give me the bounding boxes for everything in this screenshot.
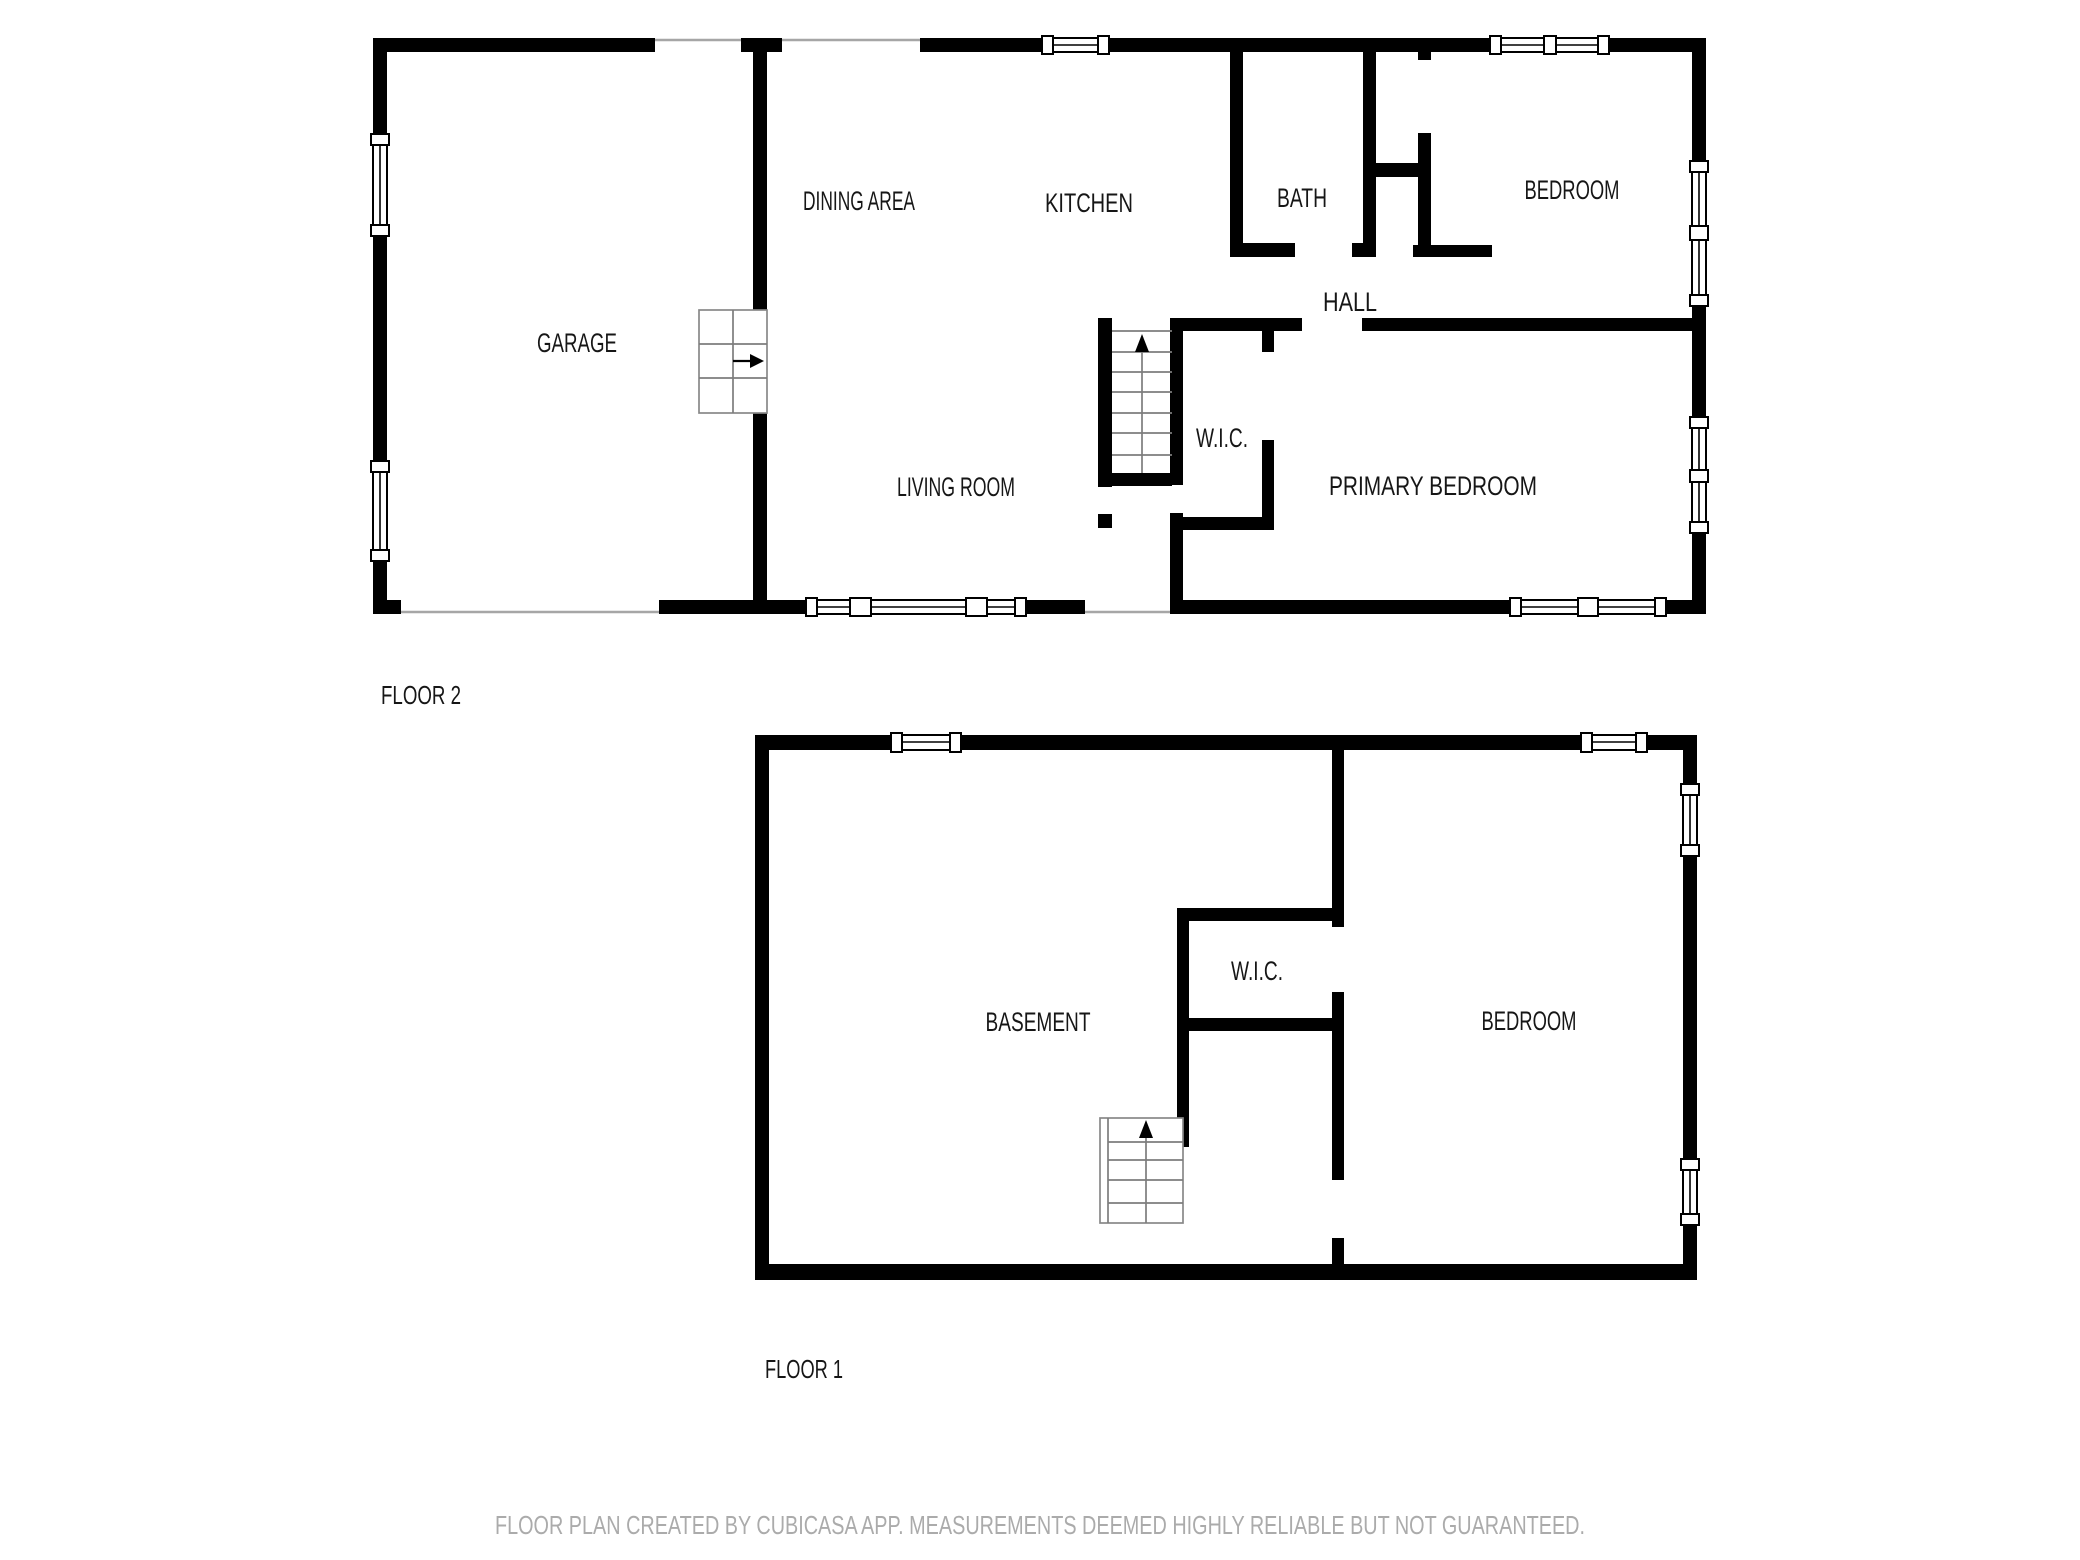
window — [1690, 417, 1708, 533]
room-label-basement: BASEMENT — [986, 1007, 1091, 1037]
window — [891, 733, 961, 752]
floorplan-page: GARAGE DINING AREA KITCHEN BATH BEDROOM … — [0, 0, 2080, 1560]
window — [806, 598, 1026, 616]
room-label-bedroom-floor1: BEDROOM — [1482, 1006, 1577, 1036]
floor2-stairs — [1112, 331, 1172, 473]
room-label-wic-floor2: W.I.C. — [1196, 423, 1248, 453]
floor1-stairs — [1100, 1118, 1183, 1223]
floor2-plan: GARAGE DINING AREA KITCHEN BATH BEDROOM … — [371, 36, 1708, 710]
window — [1490, 36, 1609, 54]
floor2-interior-walls — [753, 52, 1692, 614]
room-label-bedroom: BEDROOM — [1525, 175, 1620, 205]
window — [1042, 36, 1109, 54]
room-label-dining-area: DINING AREA — [803, 186, 915, 216]
floor1-windows — [891, 733, 1699, 1225]
window — [371, 134, 389, 236]
room-label-garage: GARAGE — [537, 328, 617, 358]
floor1-plan: BASEMENT W.I.C. BEDROOM FLOOR 1 — [755, 733, 1699, 1384]
floor2-label: FLOOR 2 — [381, 680, 461, 710]
garage-entry-steps — [699, 310, 767, 413]
window — [1581, 733, 1647, 752]
room-label-living-room: LIVING ROOM — [897, 472, 1015, 502]
room-label-bath: BATH — [1277, 183, 1327, 213]
room-label-hall: HALL — [1323, 287, 1377, 317]
window — [371, 461, 389, 561]
stair-direction-arrow — [1135, 334, 1149, 352]
floor1-label: FLOOR 1 — [765, 1354, 843, 1384]
floorplan-svg: GARAGE DINING AREA KITCHEN BATH BEDROOM … — [0, 0, 2080, 1560]
floor2-door-openings — [401, 40, 1170, 612]
floor1-interior-walls — [1177, 750, 1344, 1264]
window — [1510, 598, 1666, 616]
window — [1681, 784, 1699, 856]
window — [1681, 1159, 1699, 1225]
room-label-primary-bedroom: PRIMARY BEDROOM — [1329, 471, 1537, 501]
room-label-kitchen: KITCHEN — [1045, 188, 1133, 218]
window — [1690, 161, 1708, 306]
room-label-wic-floor1: W.I.C. — [1231, 956, 1283, 986]
footer-disclaimer: FLOOR PLAN CREATED BY CUBICASA APP. MEAS… — [495, 1510, 1585, 1540]
